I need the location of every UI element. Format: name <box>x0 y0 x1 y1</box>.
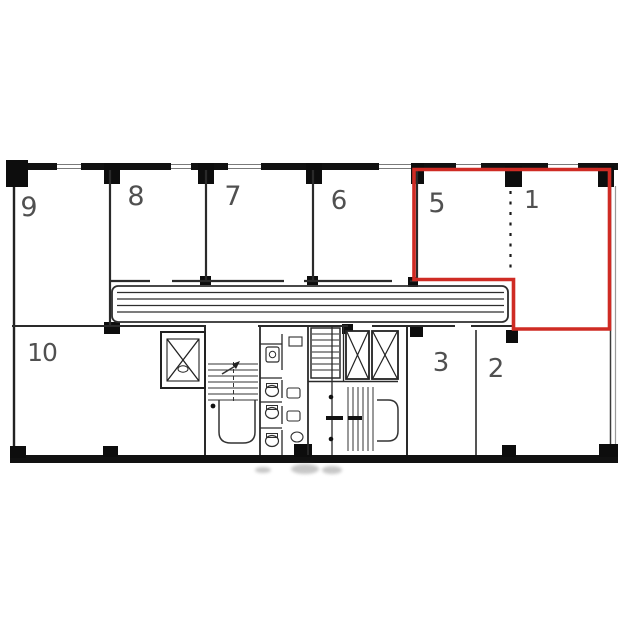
plan-linework: 9 8 7 6 5 1 10 3 2 <box>6 160 618 474</box>
caption-smudge <box>255 464 342 474</box>
room-label-2: 2 <box>488 354 505 384</box>
room-label-7: 7 <box>224 181 241 212</box>
elevator-icon-left <box>161 332 205 388</box>
staircase-icon-left <box>208 361 258 443</box>
room-label-1: 1 <box>524 185 540 214</box>
room-labels: 9 8 7 6 5 1 10 3 2 <box>20 181 540 384</box>
floor-plan-screenshot: 9 8 7 6 5 1 10 3 2 <box>0 0 630 630</box>
elevator-icon-right <box>372 331 398 379</box>
room-label-8: 8 <box>127 181 144 212</box>
room-label-3: 3 <box>433 348 450 378</box>
elevator-icon-mid <box>346 331 369 379</box>
floor-plan-drawing: 9 8 7 6 5 1 10 3 2 <box>0 0 630 630</box>
room-label-5: 5 <box>428 188 445 219</box>
toilet-fixtures <box>266 337 304 447</box>
room-label-9: 9 <box>20 192 37 223</box>
service-stair-icon <box>311 328 340 378</box>
room-label-10: 10 <box>27 338 57 367</box>
staircase-icon-right <box>326 387 398 451</box>
corridor-band <box>112 286 508 322</box>
room-label-6: 6 <box>331 186 348 216</box>
